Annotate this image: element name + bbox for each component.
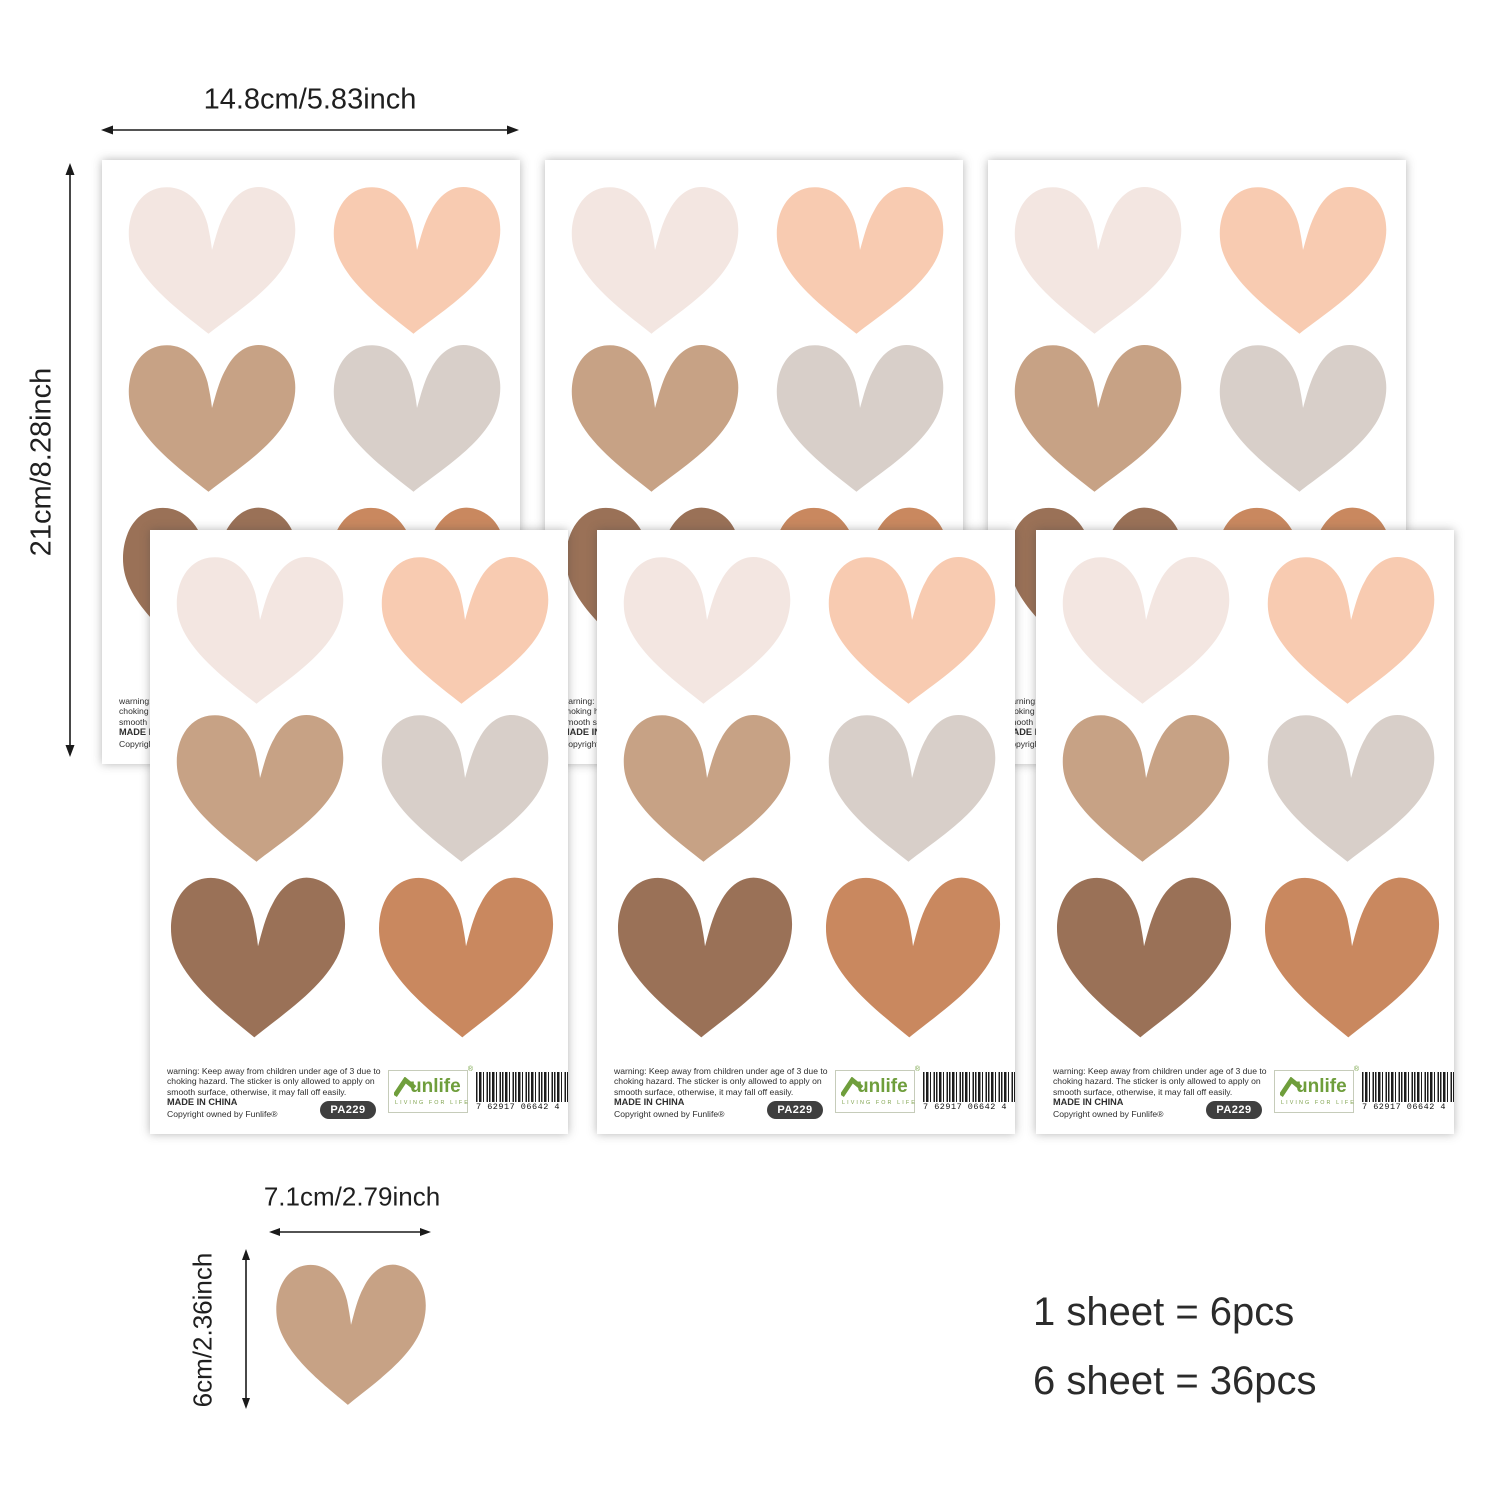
heart-sticker-cream [1058,550,1234,708]
sticker-sheet: warning: Keep away from children under a… [1036,530,1454,1134]
registered-mark-icon: ® [915,1066,920,1073]
brand-tagline: LIVING FOR LIFE [1281,1100,1356,1106]
sku-badge: PA229 [320,1101,376,1119]
heart-sticker-brown [613,870,797,1042]
copyright-text: Copyright owned by Funlife® [614,1109,724,1119]
heart-sticker-cream [172,550,348,708]
heart-sticker-terracotta [821,870,1005,1042]
heart-sticker-peach [772,180,948,338]
brand-name: unlife [410,1076,461,1098]
heart-sticker-brown [166,870,350,1042]
heart-sticker-peach [329,180,505,338]
made-in-text: MADE IN CHINA [614,1097,684,1107]
sheet-width-label: 14.8cm/5.83inch [204,84,417,117]
heart-sticker-tan [619,708,795,866]
heart-sticker-greige [824,708,1000,866]
heart-sticker-peach [824,550,1000,708]
heart-sticker-peach [1215,180,1391,338]
registered-mark-icon: ® [1354,1066,1359,1073]
heart-sticker-brown [1052,870,1236,1042]
sku-badge: PA229 [767,1101,823,1119]
heart-sticker-tan [124,338,300,496]
heart-sticker-peach [377,550,553,708]
warning-text: warning: Keep away from children under a… [614,1066,836,1097]
pack-info-line1: 1 sheet = 6pcs [1033,1278,1317,1347]
product-infographic: 14.8cm/5.83inch 21cm/8.28inch warning: K… [0,0,1500,1500]
barcode-digits: 7 62917 06642 4 [1362,1102,1454,1112]
sku-badge: PA229 [1206,1101,1262,1119]
sheet-width-arrow [100,123,520,137]
barcode-digits: 7 62917 06642 4 [476,1102,568,1112]
heart-sticker-tan [172,708,348,866]
sticker-sheet: warning: Keep away from children under a… [597,530,1015,1134]
heart-sticker-peach [1263,550,1439,708]
heart-sticker-tan [1010,338,1186,496]
warning-text: warning: Keep away from children under a… [167,1066,389,1097]
heart-sticker-cream [124,180,300,338]
brand-tagline: LIVING FOR LIFE [842,1100,917,1106]
brand-tagline: LIVING FOR LIFE [395,1100,470,1106]
copyright-text: Copyright owned by Funlife® [1053,1109,1163,1119]
heart-sticker-cream [567,180,743,338]
registered-mark-icon: ® [468,1066,473,1073]
made-in-text: MADE IN CHINA [167,1097,237,1107]
heart-width-arrow [268,1225,432,1239]
heart-sticker-greige [772,338,948,496]
pack-info: 1 sheet = 6pcs 6 sheet = 36pcs [1033,1278,1317,1416]
warning-text: warning: Keep away from children under a… [1053,1066,1275,1097]
heart-sticker-greige [329,338,505,496]
heart-sticker-tan [567,338,743,496]
pack-info-line2: 6 sheet = 36pcs [1033,1347,1317,1416]
sheet-height-label: 21cm/8.28inch [26,368,59,557]
sticker-sheet: warning: Keep away from children under a… [150,530,568,1134]
barcode: 7 62917 06642 4 [923,1072,1015,1113]
heart-sticker-terracotta [374,870,558,1042]
heart-sticker-greige [377,708,553,866]
heart-sticker-terracotta [1260,870,1444,1042]
barcode-bars-icon [923,1072,1015,1102]
heart-sticker-greige [1263,708,1439,866]
heart-sticker-cream [619,550,795,708]
copyright-text: Copyright owned by Funlife® [167,1109,277,1119]
heart-sticker-tan [1058,708,1234,866]
barcode: 7 62917 06642 4 [1362,1072,1454,1113]
heart-sticker-greige [1215,338,1391,496]
barcode-bars-icon [476,1072,568,1102]
sheet-height-arrow [63,162,77,758]
funlife-logo: ® unlife LIVING FOR LIFE [388,1070,468,1113]
barcode: 7 62917 06642 4 [476,1072,568,1113]
heart-sticker-cream [1010,180,1186,338]
heart-width-label: 7.1cm/2.79inch [264,1182,440,1213]
barcode-digits: 7 62917 06642 4 [923,1102,1015,1112]
funlife-logo: ® unlife LIVING FOR LIFE [1274,1070,1354,1113]
barcode-bars-icon [1362,1072,1454,1102]
single-heart-sample [272,1258,430,1409]
heart-height-arrow [239,1248,253,1410]
brand-name: unlife [1296,1076,1347,1098]
brand-name: unlife [857,1076,908,1098]
heart-height-label: 6cm/2.36inch [188,1253,219,1408]
funlife-logo: ® unlife LIVING FOR LIFE [835,1070,915,1113]
made-in-text: MADE IN CHINA [1053,1097,1123,1107]
